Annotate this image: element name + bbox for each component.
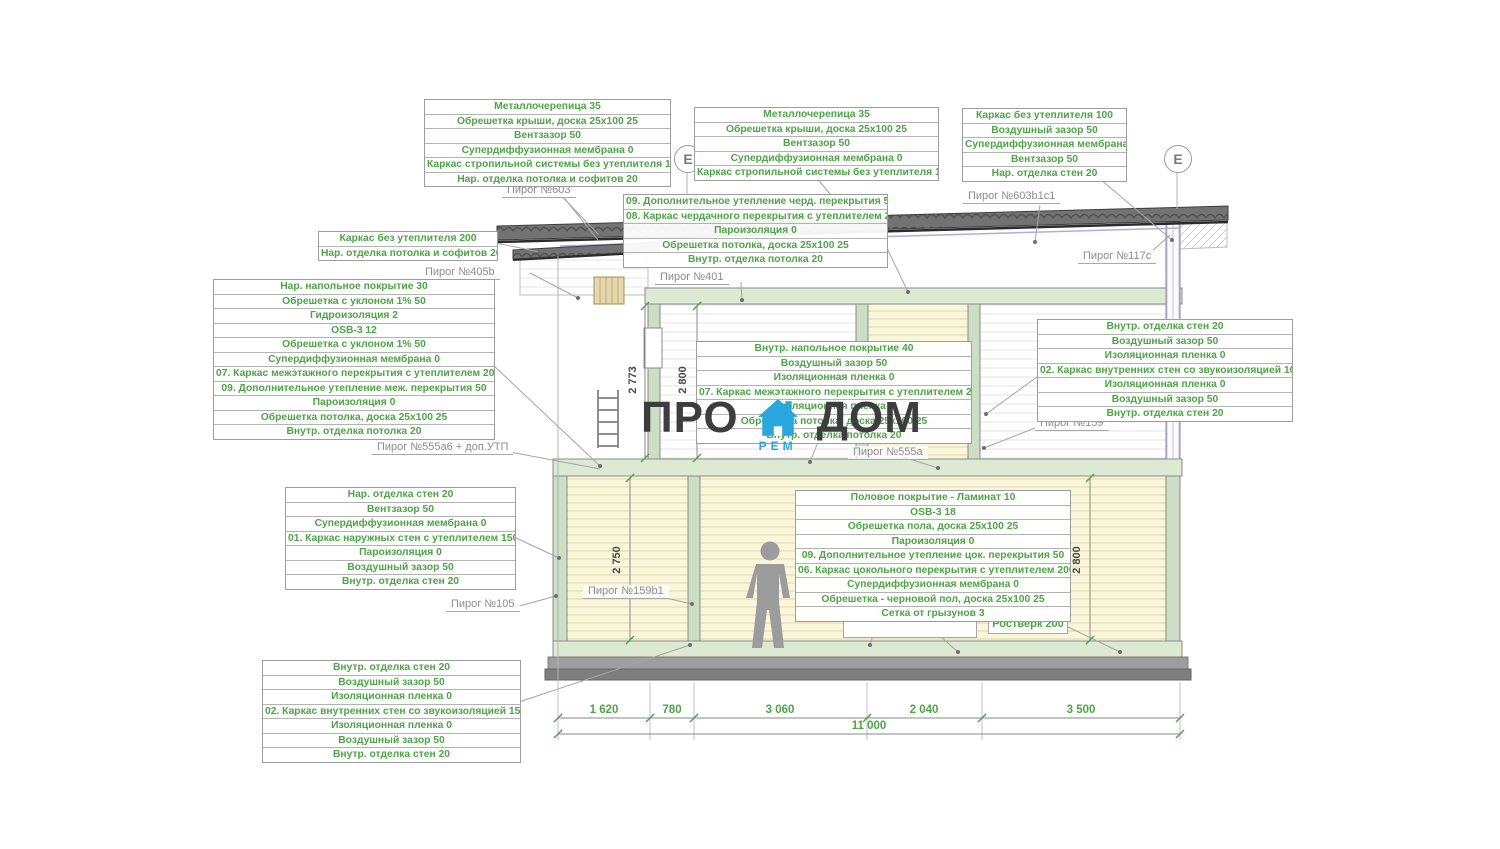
callout-interior-wall-ground: Внутр. отделка стен 20Воздушный зазор 50… [262,660,521,763]
logo-text-pro: ПРО [641,398,739,438]
callout-row: Обрешетка крыши, доска 25х100 25 [695,123,938,138]
callout-row: Воздушный зазор 50 [263,734,520,749]
dim-1620: 1 620 [590,704,619,716]
callout-row: Каркас стропильной системы без утеплител… [425,158,670,173]
section-drawing-sheet: Металлочерепица 35Обрешетка крыши, доска… [0,0,1500,849]
callout-row: Внутр. отделка стен 20 [1038,407,1292,421]
plank-block [594,277,624,304]
callout-row: 09. Дополнительное утепление меж. перекр… [214,382,494,397]
callout-row: Каркас без утеплителя 200 [319,232,497,247]
callout-row: Воздушный зазор 50 [286,561,515,576]
callout-row: 01. Каркас наружных стен с утеплителем 1… [286,532,515,547]
callout-row: Вентзазор 50 [963,153,1126,168]
callout-row: Изоляционная пленка 0 [263,690,520,705]
callout-row: Внутр. отделка стен 20 [1038,320,1292,335]
callout-roof-left: Металлочерепица 35Обрешетка крыши, доска… [424,99,671,187]
callout-row: OSB-3 18 [796,506,1070,521]
callout-row: Обрешетка с уклоном 1% 50 [214,338,494,353]
callout-row: Супердиффузионная мембрана 0 [796,578,1070,593]
callout-row: Воздушный зазор 50 [1038,393,1292,408]
dim-2773: 2 773 [627,350,639,410]
callout-row: Обрешетка потолка, доска 25х100 25 [624,239,887,254]
callout-row: Изоляционная пленка 0 [263,719,520,734]
callout-row: Обрешетка - черновой пол, доска 25х100 2… [796,593,1070,608]
house-icon [755,398,801,440]
callout-row: Воздушный зазор 50 [963,124,1126,139]
callout-row: 06. Каркас цокольного перекрытия с утепл… [796,564,1070,579]
callout-interfloor-left: Нар. напольное покрытие 30Обрешетка с ук… [213,279,495,440]
callout-row: 02. Каркас внутренних стен со звукоизоля… [1038,364,1292,379]
dim-2040: 2 040 [910,704,939,716]
callout-row: Нар. отделка потолка и софитов 20 [319,247,497,261]
dim-780: 780 [662,704,681,716]
callout-row: Внутр. отделка стен 20 [286,575,515,589]
callout-row: Пароизоляция 0 [796,535,1070,550]
callout-row: Сетка от грызунов 3 [796,607,1070,621]
callout-row: Обрешетка крыши, доска 25х100 25 [425,115,670,130]
callout-row: Вентзазор 50 [695,137,938,152]
callout-row: Супердиффузионная мембрана 0 [214,353,494,368]
callout-row: Нар. напольное покрытие 30 [214,280,494,295]
callout-exterior-wall-left: Нар. отделка стен 20Вентзазор 50Супердиф… [285,487,516,590]
callout-row: Внутр. отделка потолка 20 [214,425,494,439]
callout-row: Вентзазор 50 [286,503,515,518]
callout-row: Внутр. отделка потолка 20 [624,253,887,267]
callout-row: Пароизоляция 0 [214,396,494,411]
dim-3500: 3 500 [1067,704,1096,716]
callout-row: Гидроизоляция 2 [214,309,494,324]
prodom-logo: ПРО РЕМ ДОМ [641,398,922,452]
window [644,328,662,368]
callout-wall-top-right: Каркас без утеплителя 100Воздушный зазор… [962,108,1127,182]
callout-row: Внутр. отделка стен 20 [263,661,520,676]
pie-label-105: Пирог №105 [446,598,520,612]
pie-label-117c: Пирог №117c [1078,250,1156,264]
callout-row: Обрешетка пола, доска 25х100 25 [796,520,1070,535]
callout-interior-wall-right: Внутр. отделка стен 20Воздушный зазор 50… [1037,319,1293,422]
callout-row: Супердиффузионная мембрана 0 [286,517,515,532]
callout-row: Обрешетка потолка, доска 25х100 25 [214,411,494,426]
dim-2800-lower: 2 800 [1071,530,1083,590]
callout-row: Воздушный зазор 50 [697,357,971,372]
callout-row: OSB-3 12 [214,324,494,339]
callout-row: Супердиффузионная мембрана 0 [425,144,670,159]
dim-total-11000: 11 000 [852,720,887,732]
callout-row: 07. Каркас межэтажного перекрытия с утеп… [214,367,494,382]
callout-row: Пароизоляция 0 [624,224,887,239]
callout-row: Изоляционная пленка 0 [1038,378,1292,393]
callout-row: Нар. отделка стен 20 [286,488,515,503]
dim-3060: 3 060 [766,704,795,716]
callout-row: Каркас стропильной системы без утеплител… [695,166,938,180]
callout-row: 09. Дополнительное утепление цок. перекр… [796,549,1070,564]
callout-row: Каркас без утеплителя 100 [963,109,1126,124]
callout-row: Воздушный зазор 50 [263,676,520,691]
callout-row: Обрешетка с уклоном 1% 50 [214,295,494,310]
callout-row: Нар. отделка потолка и софитов 20 [425,173,670,187]
pie-label-603b1c1: Пирог №603b1c1 [963,190,1060,204]
callout-row: Вентзазор 50 [425,129,670,144]
callout-row: Внутр. отделка стен 20 [263,748,520,762]
grid-marker-right: Е [1164,145,1192,173]
callout-row: Супердиффузионная мембрана 0 [695,152,938,167]
logo-text-rem: РЕМ [759,441,797,452]
callout-row: Изоляционная пленка 0 [1038,349,1292,364]
pie-label-159b1: Пирог №159b1 [583,585,669,599]
callout-attic-ceiling: 09. Дополнительное утепление черд. перек… [623,194,888,268]
callout-eaves-left: Каркас без утеплителя 200Нар. отделка по… [318,231,498,261]
logo-text-dom: ДОМ [817,398,922,438]
callout-row: Металлочерепица 35 [695,108,938,123]
callout-row: Внутр. напольное покрытие 40 [697,342,971,357]
ladder-icon [598,390,618,448]
callout-row: 02. Каркас внутренних стен со звукоизоля… [263,705,520,720]
pie-label-405b: Пирог №405b [420,266,500,280]
callout-row: Нар. отделка стен 20 [963,167,1126,181]
pie-label-555a6: Пирог №555а6 + доп.УТП [372,441,513,455]
callout-row: Половое покрытие - Ламинат 10 [796,491,1070,506]
callout-row: Пароизоляция 0 [286,546,515,561]
callout-ground-floor: Половое покрытие - Ламинат 10OSB-3 18Обр… [795,490,1071,622]
callout-row: Супердиффузионная мембрана 0 [963,138,1126,153]
callout-row: Изоляционная пленка 0 [697,371,971,386]
callout-row: Воздушный зазор 50 [1038,335,1292,350]
foundation [545,657,1191,680]
pie-label-401: Пирог №401 [655,271,729,285]
callout-row: Металлочерепица 35 [425,100,670,115]
callout-row: 08. Каркас чердачного перекрытия с утепл… [624,210,887,225]
callout-row: 09. Дополнительное утепление черд. перек… [624,195,887,210]
dim-2750: 2 750 [611,530,623,590]
callout-roof-mid: Металлочерепица 35Обрешетка крыши, доска… [694,107,939,181]
